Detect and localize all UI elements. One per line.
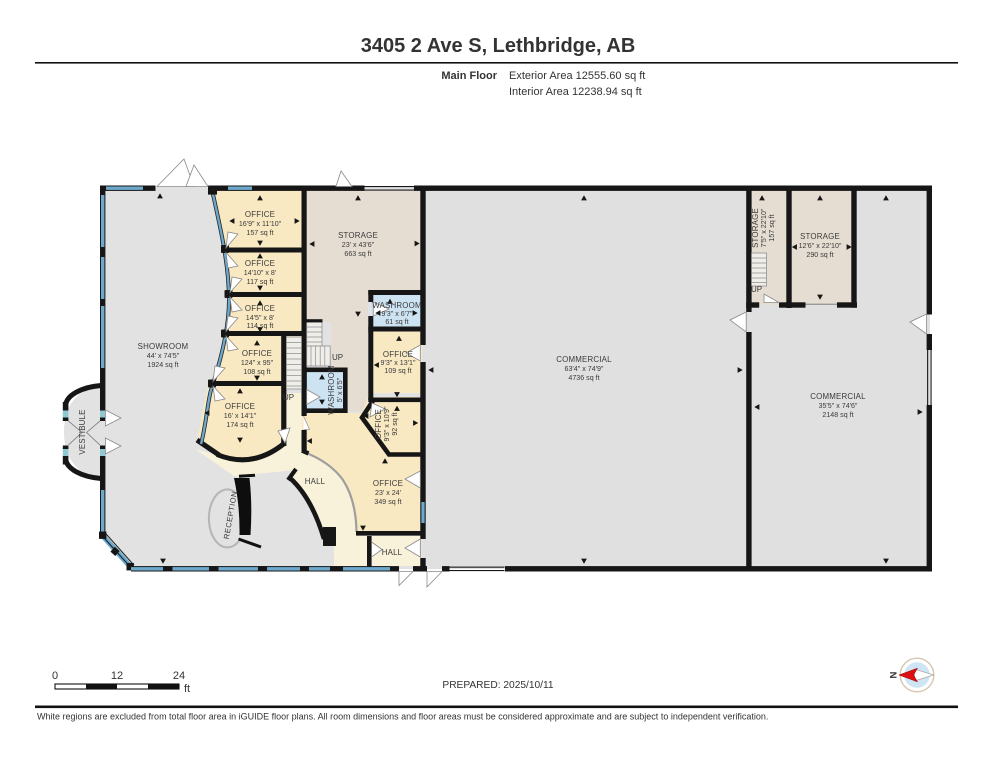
svg-text:Main Floor: Main Floor xyxy=(441,70,497,82)
svg-text:290 sq ft: 290 sq ft xyxy=(806,251,833,259)
svg-text:174 sq ft: 174 sq ft xyxy=(226,421,253,429)
svg-text:SHOWROOM: SHOWROOM xyxy=(138,342,189,351)
svg-text:108 sq ft: 108 sq ft xyxy=(243,368,270,376)
svg-text:35'5" x 74'6": 35'5" x 74'6" xyxy=(819,402,858,410)
svg-text:12: 12 xyxy=(111,670,123,682)
svg-text:WASHROOM: WASHROOM xyxy=(327,365,336,415)
svg-text:16' x 14'1": 16' x 14'1" xyxy=(224,412,257,420)
svg-text:OFFICE: OFFICE xyxy=(242,349,272,358)
svg-text:N: N xyxy=(889,671,900,678)
svg-text:5' x 6'5": 5' x 6'5" xyxy=(336,377,344,402)
svg-text:61 sq ft: 61 sq ft xyxy=(385,318,408,326)
svg-text:14'5" x 8': 14'5" x 8' xyxy=(246,314,275,322)
svg-text:114 sq ft: 114 sq ft xyxy=(247,322,274,330)
svg-text:COMMERCIAL: COMMERCIAL xyxy=(556,355,612,364)
svg-text:124" x 95": 124" x 95" xyxy=(241,359,274,367)
svg-text:157 sq ft: 157 sq ft xyxy=(768,214,776,241)
svg-text:UP: UP xyxy=(751,285,762,294)
svg-text:349 sq ft: 349 sq ft xyxy=(374,498,401,506)
svg-text:ft: ft xyxy=(184,683,190,695)
svg-text:PREPARED: 2025/10/11: PREPARED: 2025/10/11 xyxy=(442,680,554,691)
svg-text:STORAGE: STORAGE xyxy=(800,232,840,241)
svg-text:44' x 74'5": 44' x 74'5" xyxy=(147,352,180,360)
svg-text:WASHROOM: WASHROOM xyxy=(372,301,422,310)
svg-text:4736 sq ft: 4736 sq ft xyxy=(568,374,599,382)
svg-text:1924 sq ft: 1924 sq ft xyxy=(147,361,178,369)
svg-text:OFFICE: OFFICE xyxy=(245,259,275,268)
svg-text:24: 24 xyxy=(173,670,185,682)
svg-text:117 sq ft: 117 sq ft xyxy=(247,278,274,286)
svg-text:2148 sq ft: 2148 sq ft xyxy=(822,411,853,419)
svg-text:HALL: HALL xyxy=(305,477,326,486)
svg-text:9'3" x 13'1": 9'3" x 13'1" xyxy=(381,359,416,367)
svg-text:White regions are excluded fro: White regions are excluded from total fl… xyxy=(37,712,768,722)
svg-text:7'5" x 22'10": 7'5" x 22'10" xyxy=(760,208,768,247)
svg-text:VESTIBULE: VESTIBULE xyxy=(78,409,87,454)
svg-text:STORAGE: STORAGE xyxy=(338,231,378,240)
svg-text:109 sq ft: 109 sq ft xyxy=(384,367,411,375)
svg-text:3405 2 Ave S, Lethbridge, AB: 3405 2 Ave S, Lethbridge, AB xyxy=(361,35,636,57)
svg-text:9'3" x 10'9": 9'3" x 10'9" xyxy=(383,406,391,441)
svg-text:OFFICE: OFFICE xyxy=(383,350,413,359)
svg-text:OFFICE: OFFICE xyxy=(373,479,403,488)
svg-text:UP: UP xyxy=(332,353,343,362)
svg-text:OFFICE: OFFICE xyxy=(245,304,275,313)
svg-text:OFFICE: OFFICE xyxy=(225,402,255,411)
svg-text:23' x 24': 23' x 24' xyxy=(375,489,401,497)
svg-text:23' x 43'6": 23' x 43'6" xyxy=(342,241,375,249)
svg-text:OFFICE: OFFICE xyxy=(374,409,383,439)
svg-text:663 sq ft: 663 sq ft xyxy=(344,250,371,258)
svg-text:STORAGE: STORAGE xyxy=(751,208,760,248)
svg-text:9'3" x 6'7": 9'3" x 6'7" xyxy=(381,310,412,318)
svg-text:63'4" x 74'9": 63'4" x 74'9" xyxy=(565,365,604,373)
svg-text:157 sq ft: 157 sq ft xyxy=(246,229,273,237)
svg-text:COMMERCIAL: COMMERCIAL xyxy=(810,392,866,401)
svg-text:HALL: HALL xyxy=(382,548,403,557)
svg-text:OFFICE: OFFICE xyxy=(245,210,275,219)
svg-text:UP: UP xyxy=(283,393,294,402)
svg-text:Exterior Area 12555.60 sq ft: Exterior Area 12555.60 sq ft xyxy=(509,70,645,82)
svg-text:12'6" x 22'10": 12'6" x 22'10" xyxy=(799,242,842,250)
svg-text:92 sq ft: 92 sq ft xyxy=(391,412,399,435)
svg-text:Interior Area 12238.94 sq ft: Interior Area 12238.94 sq ft xyxy=(509,86,642,98)
svg-text:14'10" x 8': 14'10" x 8' xyxy=(244,269,276,277)
svg-text:0: 0 xyxy=(52,670,58,682)
svg-text:16'9" x 11'10": 16'9" x 11'10" xyxy=(239,220,282,228)
